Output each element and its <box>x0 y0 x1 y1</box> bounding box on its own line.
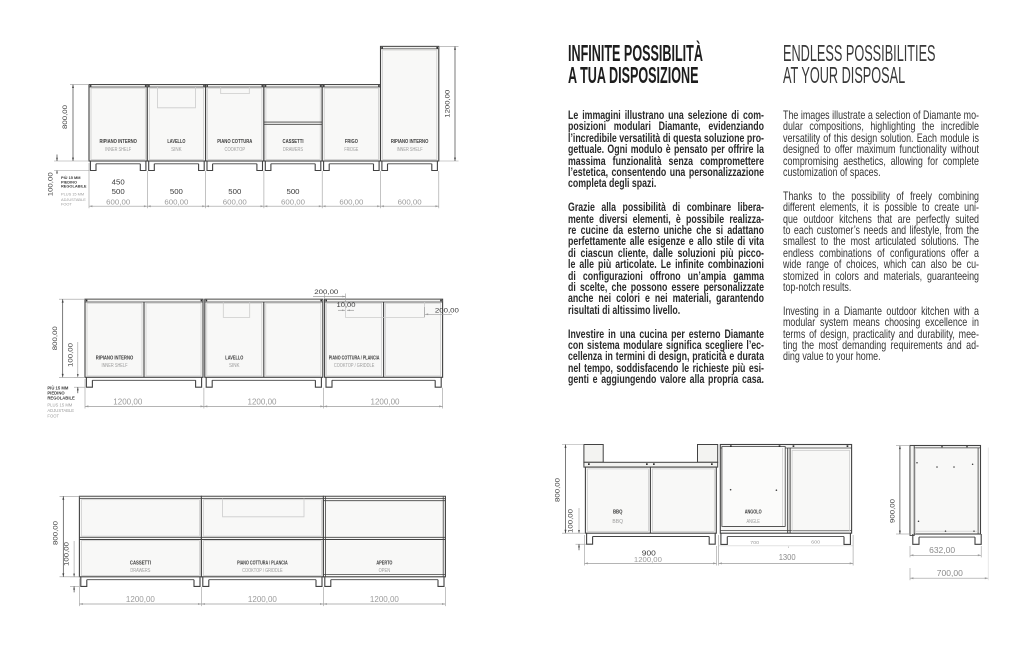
svg-text:600,00: 600,00 <box>281 197 305 206</box>
svg-text:1200,00: 1200,00 <box>248 398 278 407</box>
svg-text:800,00: 800,00 <box>53 520 60 545</box>
svg-text:PLUS 15 MM: PLUS 15 MM <box>47 402 72 407</box>
svg-text:100,00: 100,00 <box>48 172 55 197</box>
svg-text:100,00: 100,00 <box>568 508 575 533</box>
svg-text:1300: 1300 <box>779 553 796 562</box>
svg-text:INNER SHELF: INNER SHELF <box>105 147 131 153</box>
svg-text:RIPIANO INTERNO: RIPIANO INTERNO <box>96 356 134 362</box>
svg-text:1200,00: 1200,00 <box>370 595 400 604</box>
svg-text:100,00: 100,00 <box>64 541 71 566</box>
svg-text:COOKTOP / GRIDDLE: COOKTOP / GRIDDLE <box>242 568 283 574</box>
svg-text:PIANO COTTURA / PLANCIA: PIANO COTTURA / PLANCIA <box>237 561 288 567</box>
svg-text:ADJUSTABLE: ADJUSTABLE <box>47 408 74 413</box>
svg-text:SINK: SINK <box>229 363 240 369</box>
svg-text:OPEN: OPEN <box>379 568 391 574</box>
svg-text:200,00: 200,00 <box>435 308 459 315</box>
svg-text:1200,00: 1200,00 <box>634 555 662 564</box>
svg-text:FRIDGE: FRIDGE <box>344 147 358 153</box>
svg-text:PIANO COTTURA / PLANCIA: PIANO COTTURA / PLANCIA <box>329 356 380 362</box>
svg-text:SINK: SINK <box>171 147 182 153</box>
svg-text:500: 500 <box>287 187 300 196</box>
svg-text:PLUS 15 MM: PLUS 15 MM <box>61 191 84 196</box>
svg-text:500: 500 <box>228 187 241 196</box>
svg-text:1200,00: 1200,00 <box>445 89 452 118</box>
svg-text:600,00: 600,00 <box>223 197 247 206</box>
svg-text:INNER SHELF: INNER SHELF <box>102 363 128 369</box>
svg-text:CASSETTI: CASSETTI <box>130 561 151 567</box>
svg-text:RIPIANO INTERNO: RIPIANO INTERNO <box>99 139 137 145</box>
svg-text:600,00: 600,00 <box>339 197 363 206</box>
svg-text:500: 500 <box>170 187 183 196</box>
svg-text:PIANO COTTURA: PIANO COTTURA <box>217 139 252 145</box>
svg-text:FRIGO: FRIGO <box>345 139 358 145</box>
svg-text:BBQ: BBQ <box>612 519 623 525</box>
svg-text:APERTO: APERTO <box>376 561 392 567</box>
svg-text:ANGOLO: ANGOLO <box>745 509 762 515</box>
svg-text:DRAWERS: DRAWERS <box>283 147 304 153</box>
svg-text:1200,00: 1200,00 <box>371 398 401 407</box>
svg-text:CASSETTI: CASSETTI <box>283 139 304 145</box>
svg-text:COOKTOP: COOKTOP <box>224 147 245 153</box>
svg-text:DRAWERS: DRAWERS <box>130 568 151 574</box>
svg-text:100,00: 100,00 <box>67 342 74 367</box>
svg-text:1200,00: 1200,00 <box>126 595 156 604</box>
svg-text:FOOT: FOOT <box>61 202 72 207</box>
svg-text:ANGLE: ANGLE <box>746 519 760 525</box>
svg-text:600,00: 600,00 <box>106 197 130 206</box>
svg-text:700,00: 700,00 <box>937 569 964 578</box>
svg-text:COOKTOP / GRIDDLE: COOKTOP / GRIDDLE <box>334 363 375 369</box>
svg-text:450: 450 <box>112 177 125 186</box>
svg-text:1200,00: 1200,00 <box>248 595 278 604</box>
svg-text:BBQ: BBQ <box>613 509 623 515</box>
svg-text:600,00: 600,00 <box>164 197 188 206</box>
svg-text:INNER SHELF: INNER SHELF <box>397 147 423 153</box>
svg-text:RIPIANO INTERNO: RIPIANO INTERNO <box>391 139 429 145</box>
svg-text:REGOLABILE: REGOLABILE <box>47 396 75 401</box>
svg-text:600,00: 600,00 <box>398 197 422 206</box>
svg-text:800,00: 800,00 <box>52 326 59 351</box>
svg-text:REGOLABILE: REGOLABILE <box>61 184 87 189</box>
svg-text:1200,00: 1200,00 <box>113 398 143 407</box>
svg-text:632,00: 632,00 <box>929 546 956 555</box>
svg-text:800,00: 800,00 <box>555 477 562 502</box>
svg-text:LAVELLO: LAVELLO <box>225 356 243 362</box>
svg-text:LAVELLO: LAVELLO <box>167 139 185 145</box>
svg-text:FOOT: FOOT <box>47 413 59 418</box>
svg-text:600: 600 <box>811 540 821 545</box>
svg-text:10,00: 10,00 <box>337 302 356 309</box>
svg-text:500: 500 <box>112 187 125 196</box>
svg-text:200,00: 200,00 <box>314 289 338 296</box>
svg-text:800,00: 800,00 <box>62 104 69 129</box>
svg-text:700: 700 <box>750 540 760 545</box>
svg-text:900,00: 900,00 <box>889 498 896 523</box>
